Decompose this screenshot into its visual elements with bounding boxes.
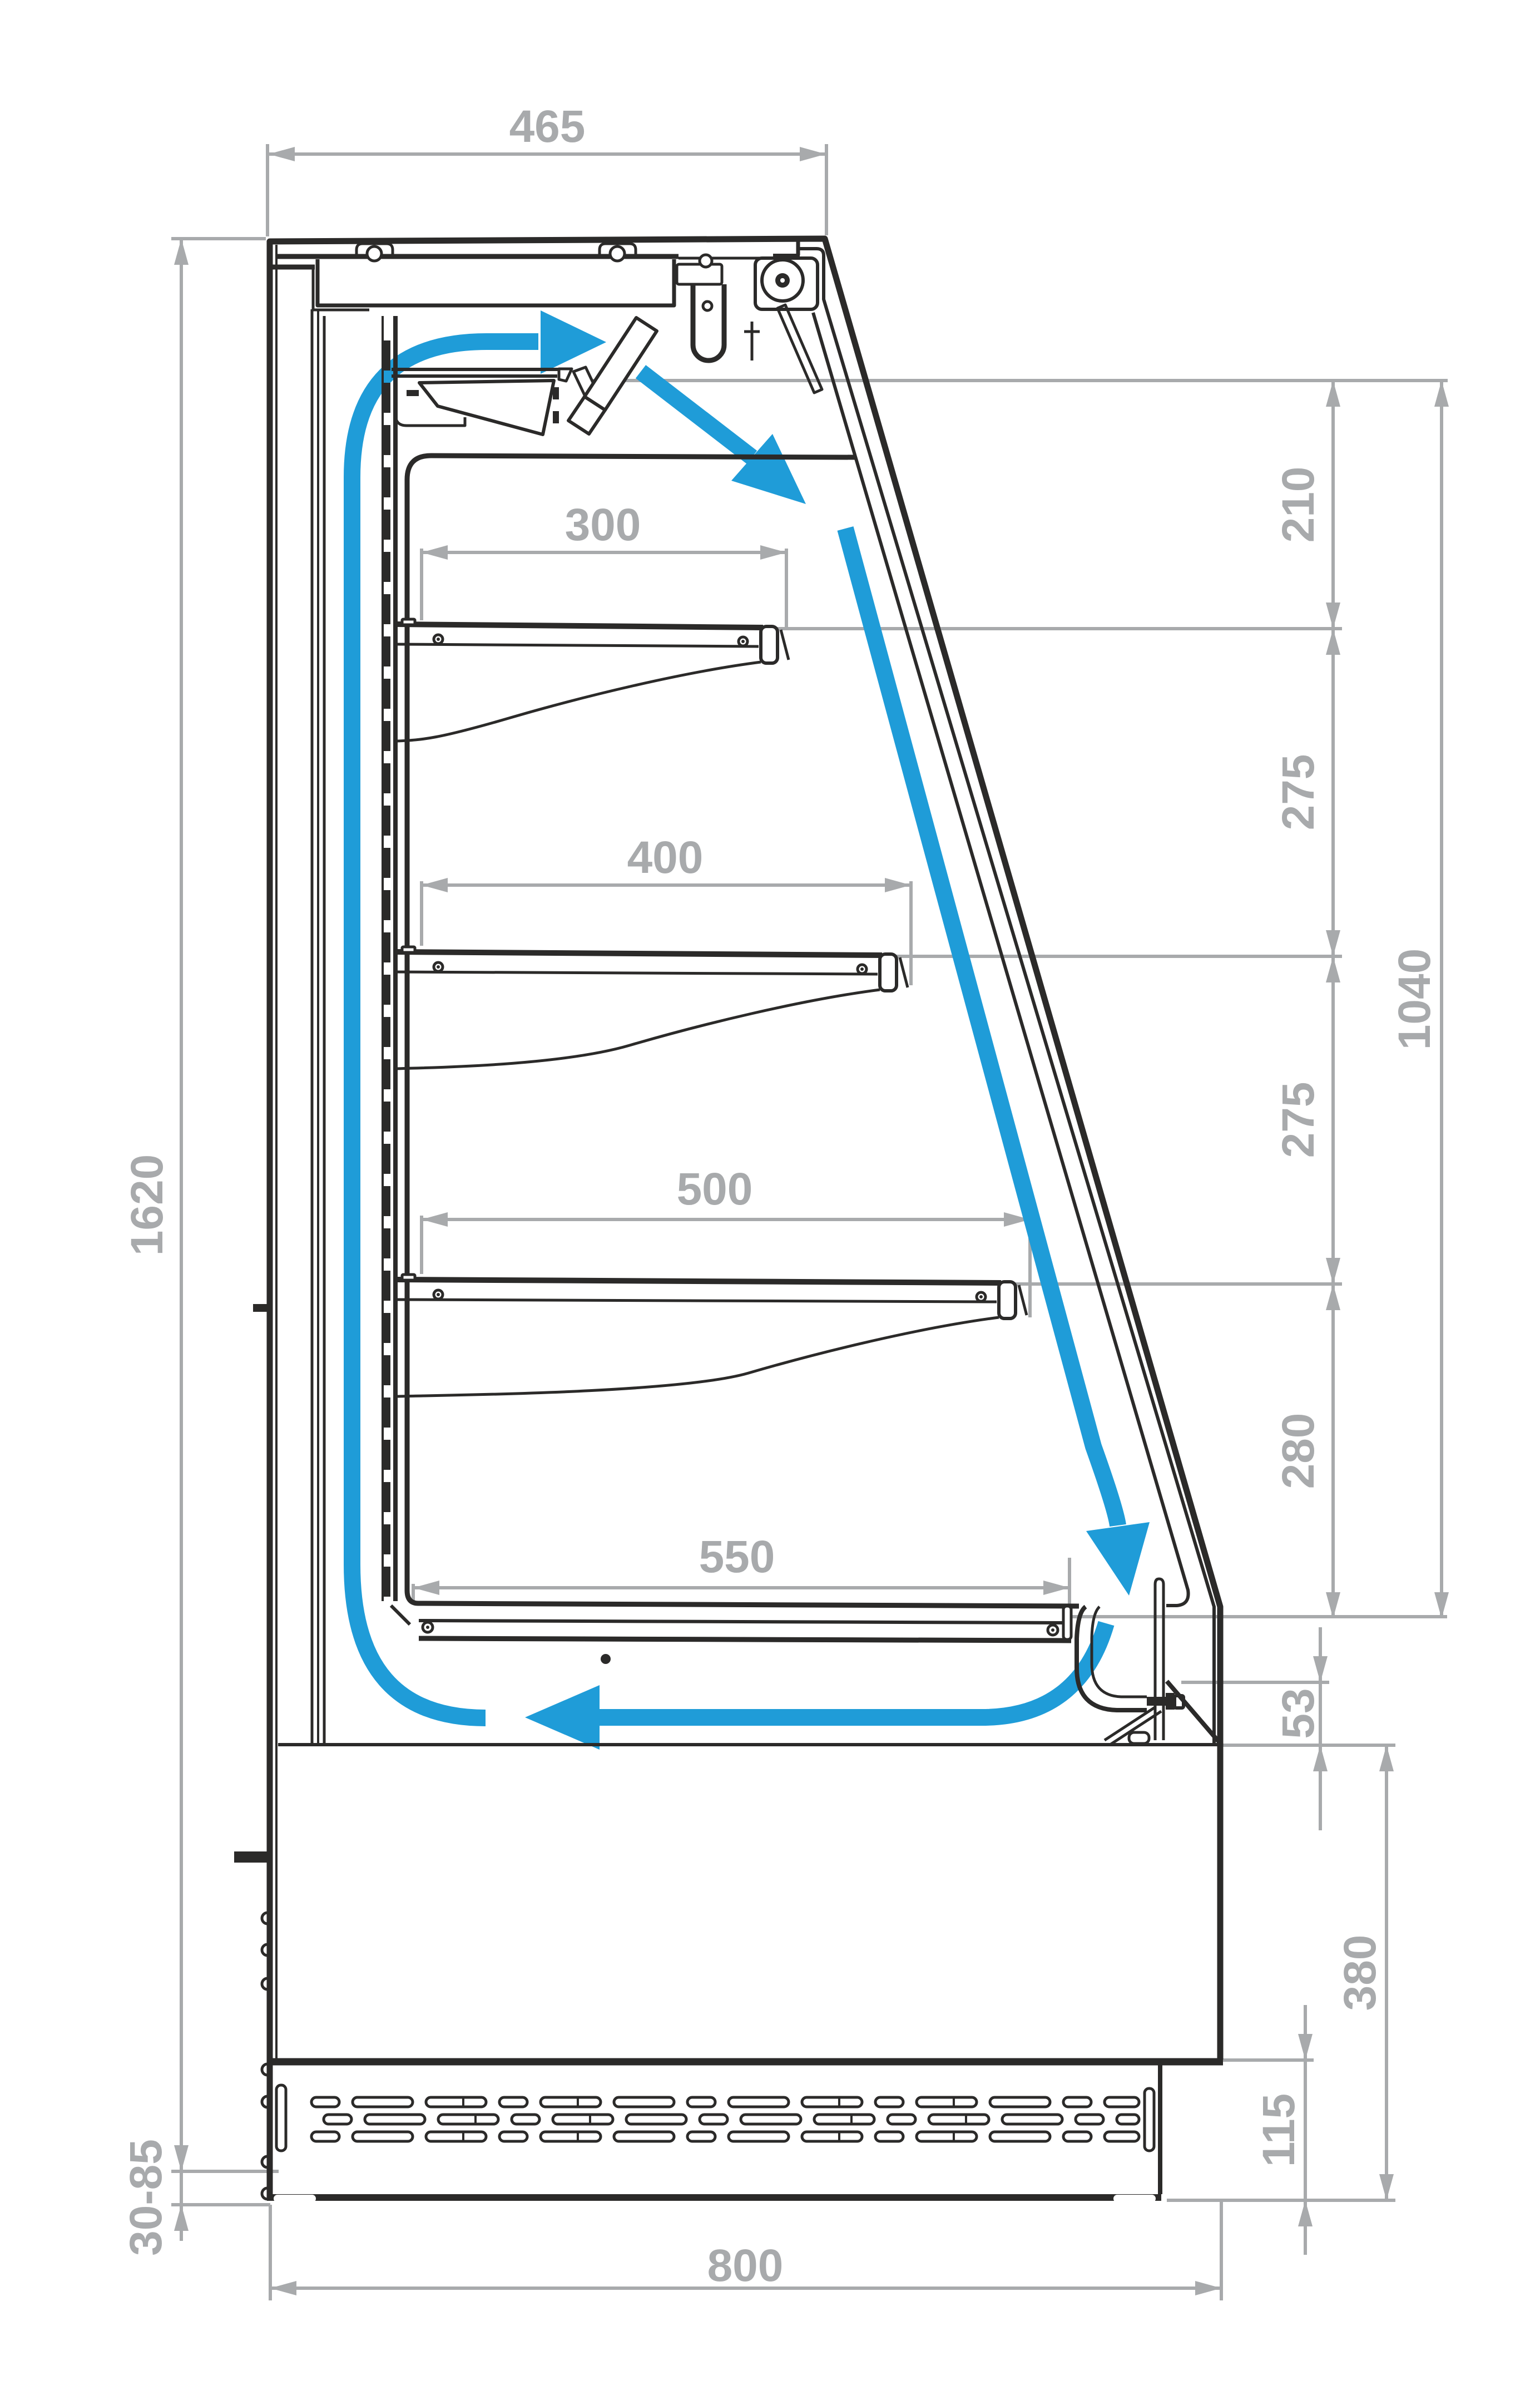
svg-text:380: 380 bbox=[1335, 1935, 1385, 2011]
svg-text:30-85: 30-85 bbox=[121, 2139, 171, 2256]
svg-text:800: 800 bbox=[707, 2240, 784, 2291]
svg-text:1620: 1620 bbox=[122, 1154, 172, 1256]
svg-text:210: 210 bbox=[1273, 467, 1324, 543]
svg-text:280: 280 bbox=[1273, 1413, 1324, 1489]
svg-text:500: 500 bbox=[677, 1164, 753, 1214]
svg-text:115: 115 bbox=[1254, 2093, 1304, 2167]
svg-text:550: 550 bbox=[699, 1532, 775, 1582]
svg-text:275: 275 bbox=[1273, 1082, 1324, 1158]
svg-text:1040: 1040 bbox=[1389, 949, 1440, 1050]
svg-text:465: 465 bbox=[509, 101, 586, 152]
svg-text:300: 300 bbox=[565, 500, 641, 550]
svg-text:400: 400 bbox=[627, 832, 704, 883]
svg-text:53: 53 bbox=[1273, 1688, 1324, 1739]
svg-text:275: 275 bbox=[1273, 754, 1324, 831]
